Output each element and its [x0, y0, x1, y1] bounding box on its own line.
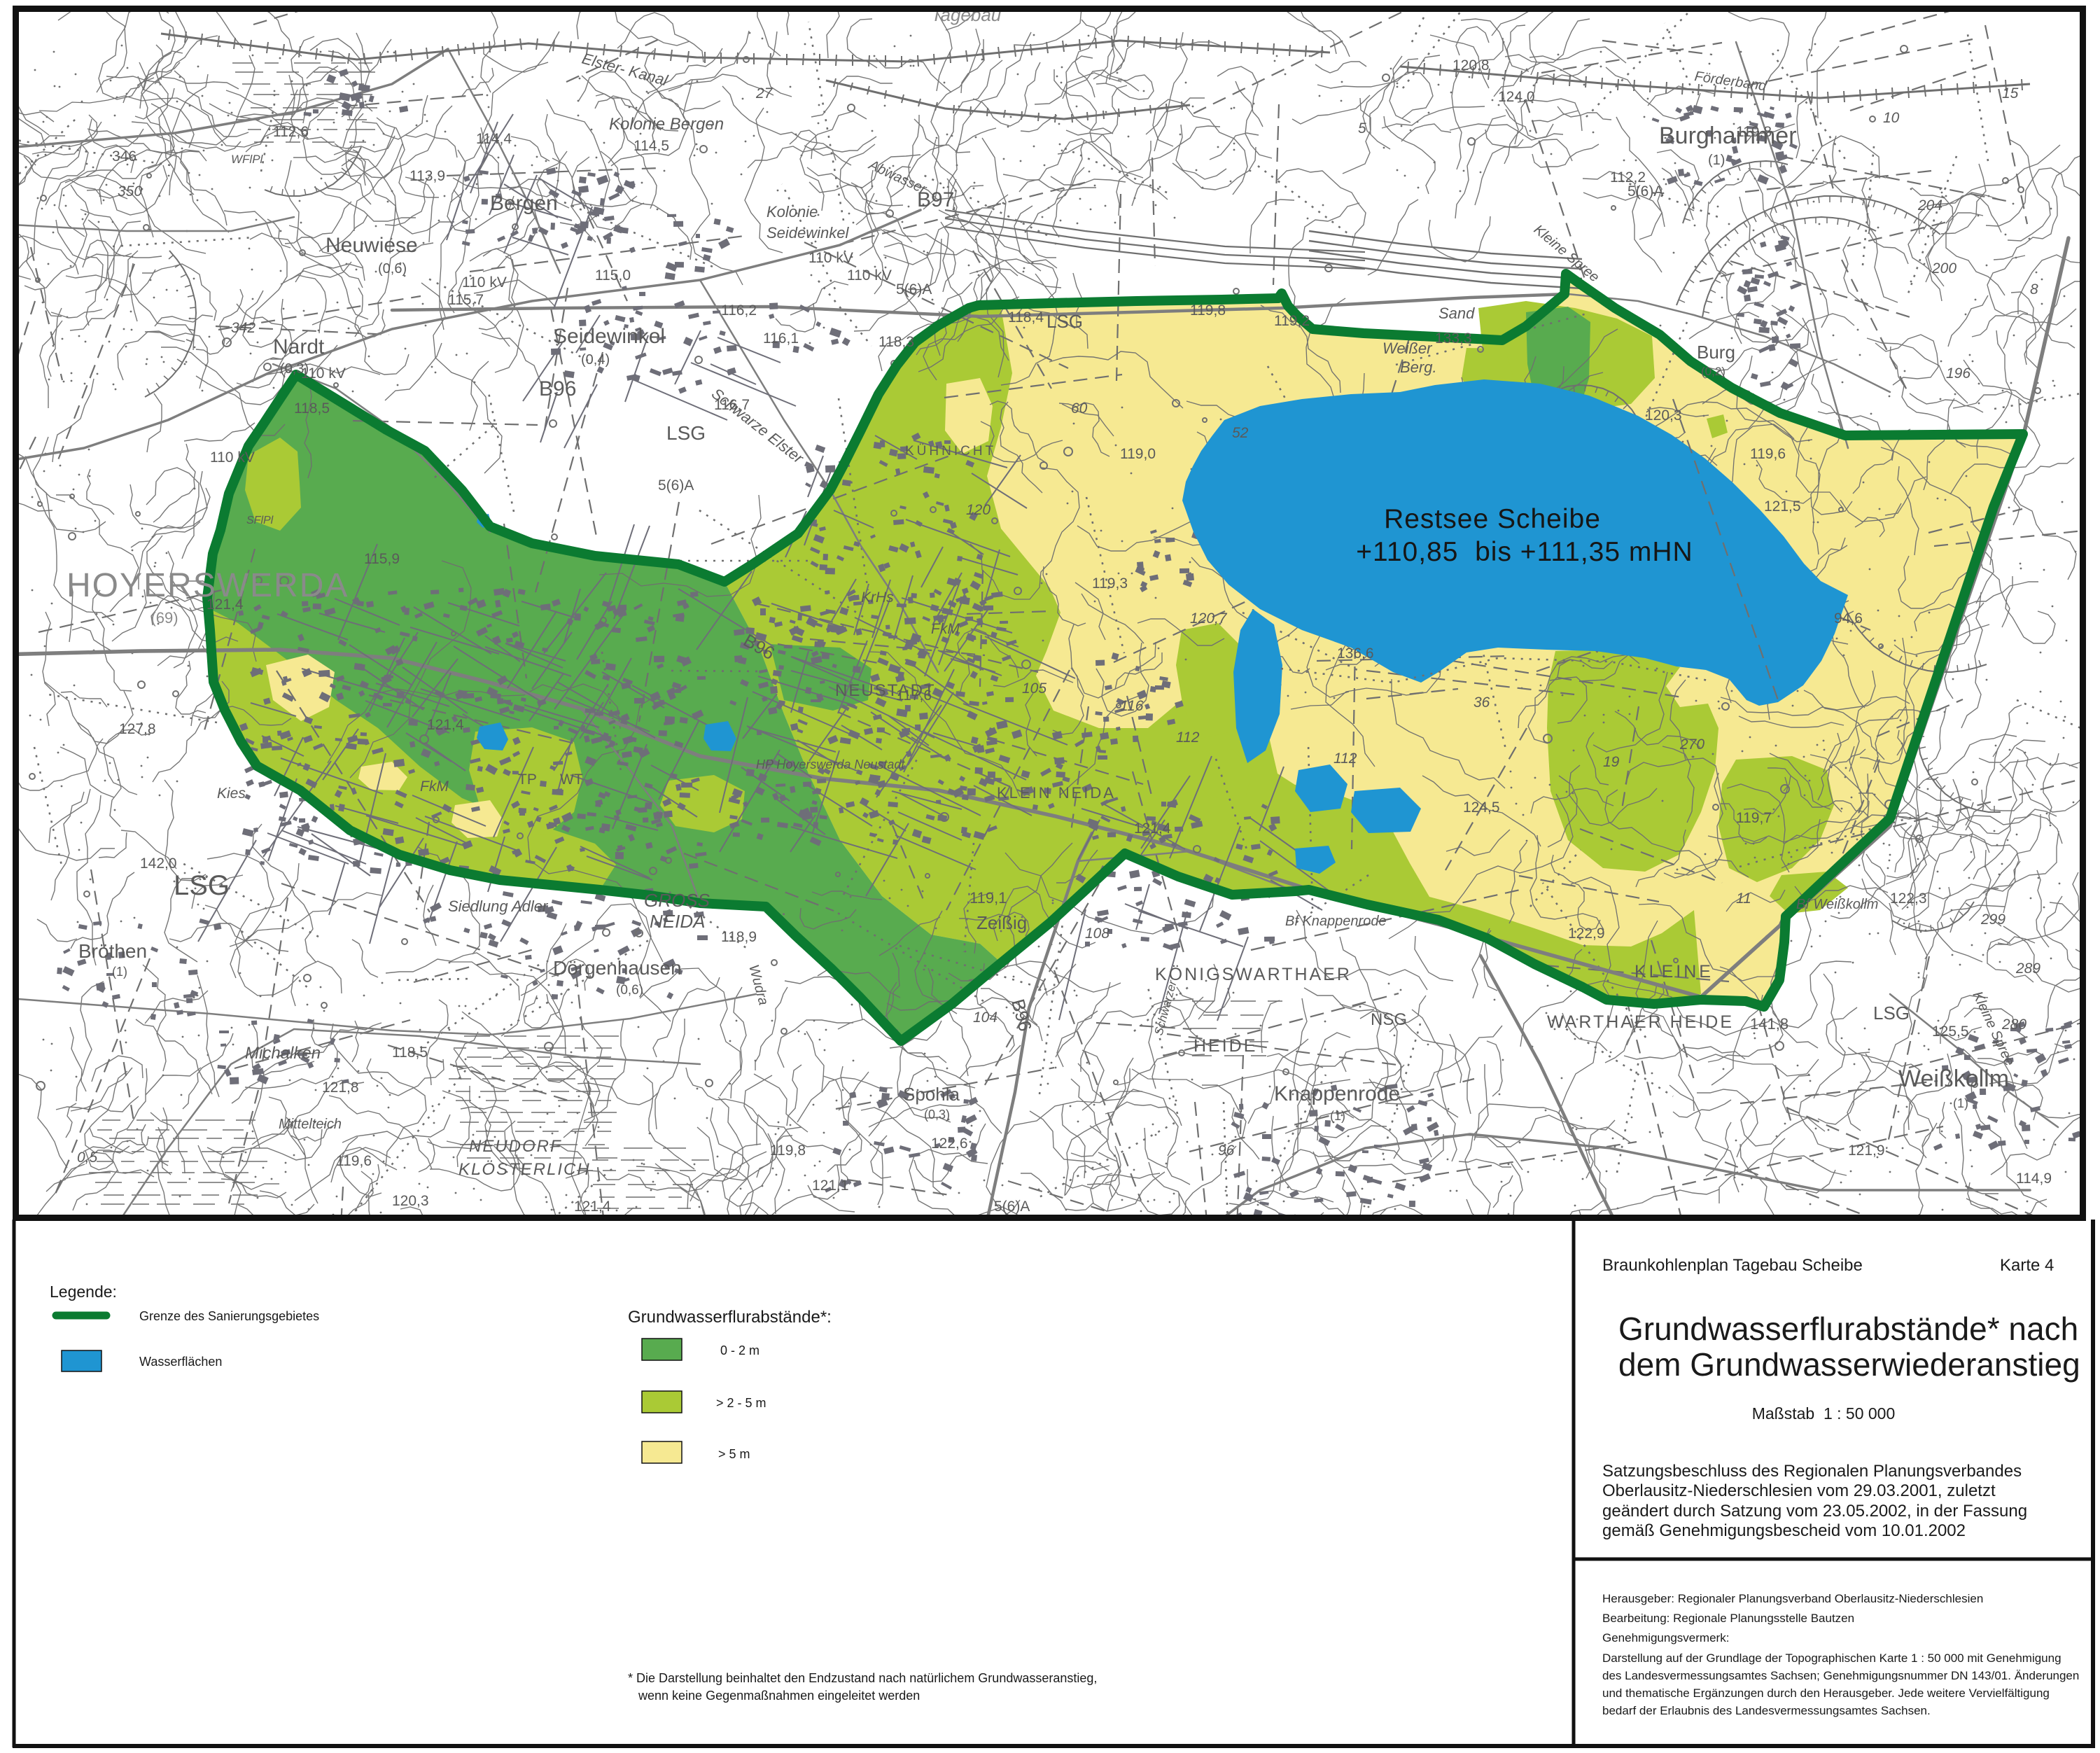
svg-text:5(6)A: 5(6)A [658, 477, 694, 494]
svg-text:119,6: 119,6 [336, 1153, 372, 1169]
svg-text:dem Grundwasserwiederanstieg: dem Grundwasserwiederanstieg [1618, 1346, 2080, 1383]
svg-text:36: 36 [1473, 694, 1490, 711]
svg-text:114,4: 114,4 [476, 131, 512, 147]
svg-text:119,8: 119,8 [1736, 124, 1772, 140]
svg-text:110 kV: 110 kV [210, 449, 255, 466]
svg-text:119,7: 119,7 [1736, 810, 1772, 826]
svg-text:196: 196 [1946, 365, 1970, 382]
svg-text:HEIDE: HEIDE [1193, 1036, 1257, 1056]
svg-text:96: 96 [1218, 1143, 1235, 1159]
svg-text:und thematische Ergänzungen du: und thematische Ergänzungen durch den He… [1602, 1686, 2050, 1700]
svg-text:Karte 4: Karte 4 [2000, 1256, 2054, 1275]
svg-text:0,5: 0,5 [77, 1150, 98, 1166]
svg-text:(0,4): (0,4) [581, 352, 610, 368]
svg-text:Burg: Burg [1697, 342, 1735, 363]
svg-text:(1): (1) [1708, 153, 1725, 168]
svg-text:KÖNIGSWARTHAER: KÖNIGSWARTHAER [1155, 965, 1352, 984]
svg-text:119,6: 119,6 [1750, 446, 1786, 462]
svg-text:113,9: 113,9 [409, 168, 445, 184]
svg-text:(0,2): (0,2) [1701, 365, 1725, 378]
svg-text:Seidewinkel: Seidewinkel [553, 325, 665, 348]
svg-text:136,6: 136,6 [1337, 645, 1374, 662]
svg-text:119,0: 119,0 [1120, 446, 1156, 462]
svg-text:120: 120 [966, 502, 990, 518]
svg-text:Oberlausitz-Niederschlesien vo: Oberlausitz-Niederschlesien vom 29.03.20… [1602, 1481, 1996, 1500]
svg-text:112: 112 [1176, 729, 1200, 746]
svg-text:Zeißig: Zeißig [976, 912, 1027, 933]
svg-text:10: 10 [1883, 110, 1900, 126]
svg-text:HP Hoyerswerda Neustadt: HP Hoyerswerda Neustadt [756, 757, 905, 771]
svg-text:geändert durch Satzung vom 23.: geändert durch Satzung vom 23.05.2002, i… [1602, 1502, 2027, 1521]
svg-text:125,5: 125,5 [1932, 1024, 1969, 1040]
svg-text:gemäß Genehmigungsbescheid vom: gemäß Genehmigungsbescheid vom 10.01.200… [1602, 1521, 1966, 1540]
svg-text:LSG: LSG [666, 422, 706, 444]
svg-text:(1): (1) [1330, 1109, 1345, 1123]
svg-text:121,4: 121,4 [1134, 820, 1171, 837]
svg-text:119,2: 119,2 [1274, 313, 1310, 329]
svg-text:27: 27 [755, 85, 773, 102]
svg-text:KLEIN NEIDA: KLEIN NEIDA [997, 784, 1116, 802]
svg-text:117,6: 117,6 [896, 687, 932, 704]
svg-text:112: 112 [1333, 750, 1357, 767]
svg-text:Genehmigungsvermerk:: Genehmigungsvermerk: [1602, 1631, 1729, 1644]
svg-text:B97: B97 [917, 188, 954, 211]
svg-text:118,4: 118,4 [1008, 309, 1044, 326]
svg-text:122,3: 122,3 [1890, 891, 1927, 907]
svg-text:NEIDA: NEIDA [650, 911, 705, 932]
svg-text:Grundwasserflurabstände*:: Grundwasserflurabstände*: [628, 1308, 832, 1327]
svg-text:Grenze des Sanierungsgebietes: Grenze des Sanierungsgebietes [139, 1309, 319, 1323]
svg-text:wenn keine Gegenmaßnahmen eing: wenn keine Gegenmaßnahmen eingeleitet we… [638, 1689, 920, 1703]
svg-text:110 kV: 110 kV [808, 250, 853, 266]
svg-text:52: 52 [1232, 425, 1249, 441]
svg-text:B96: B96 [539, 377, 576, 400]
svg-text:5(6)A: 5(6)A [994, 1199, 1030, 1215]
svg-text:Legende:: Legende: [50, 1283, 117, 1301]
svg-text:Weißer: Weißer [1382, 340, 1433, 357]
svg-text:342: 342 [231, 320, 255, 336]
svg-text:118,5: 118,5 [294, 400, 330, 417]
svg-text:121,8: 121,8 [322, 1080, 359, 1096]
svg-text:* Die Darstellung beinhaltet d: * Die Darstellung beinhaltet den Endzust… [628, 1671, 1097, 1685]
svg-text:119,1: 119,1 [969, 889, 1007, 907]
svg-text:Siedlung Adler: Siedlung Adler [448, 898, 549, 915]
svg-text:124,5: 124,5 [1463, 799, 1500, 816]
svg-text:Bergen: Bergen [490, 192, 558, 215]
svg-text:Seidewinkel: Seidewinkel [766, 224, 850, 242]
svg-text:Braunkohlenplan Tagebau Scheib: Braunkohlenplan Tagebau Scheibe [1602, 1256, 1863, 1275]
svg-text:Maßstab 1 : 50 000: Maßstab 1 : 50 000 [1752, 1404, 1896, 1423]
svg-text:LSG: LSG [1873, 1003, 1910, 1024]
svg-text:+110,85 bis +111,35 mHN: +110,85 bis +111,35 mHN [1356, 537, 1693, 567]
svg-text:Darstellung auf der Grundlage: Darstellung auf der Grundlage der Topogr… [1602, 1651, 2061, 1665]
svg-text:5(6)A: 5(6)A [896, 281, 932, 298]
svg-text:Nardt: Nardt [273, 335, 325, 358]
svg-text:Bf Knappenrode: Bf Knappenrode [1285, 914, 1387, 929]
svg-text:Wasserflächen: Wasserflächen [139, 1355, 222, 1369]
svg-text:115,0: 115,0 [595, 267, 631, 284]
svg-text:116: 116 [1120, 698, 1144, 714]
svg-text:11: 11 [1736, 891, 1751, 907]
svg-text:Restsee Scheibe: Restsee Scheibe [1384, 504, 1601, 534]
svg-text:5: 5 [1358, 120, 1366, 137]
svg-text:WFlPl: WFlPl [231, 153, 264, 166]
svg-text:Herausgeber: Regionaler Planun: Herausgeber: Regionaler Planungsverband … [1602, 1592, 1983, 1605]
svg-text:Mittelteich: Mittelteich [279, 1117, 342, 1132]
svg-text:des Landesvermessungsamtes Sac: des Landesvermessungsamtes Sachsen; Gene… [1602, 1669, 2079, 1682]
svg-text:204: 204 [1917, 197, 1942, 214]
svg-text:Michalken: Michalken [245, 1044, 321, 1063]
svg-text:(0,6): (0,6) [616, 983, 643, 998]
svg-text:Dörgenhausen: Dörgenhausen [553, 957, 682, 979]
svg-text:Berg.: Berg. [1400, 358, 1437, 376]
svg-text:119,8: 119,8 [1190, 302, 1226, 319]
svg-text:Bf Weißkollm: Bf Weißkollm [1796, 897, 1878, 912]
svg-text:110 kV: 110 kV [301, 365, 346, 382]
svg-text:104: 104 [973, 1010, 997, 1026]
svg-text:Burghammer: Burghammer [1659, 123, 1797, 149]
svg-text:121,4: 121,4 [206, 596, 244, 613]
svg-text:Sand: Sand [1438, 305, 1475, 322]
svg-text:Knappenrode: Knappenrode [1274, 1082, 1400, 1105]
svg-text:SFlPl: SFlPl [246, 515, 274, 526]
svg-text:116,7: 116,7 [714, 397, 750, 413]
svg-text:(69): (69) [150, 609, 178, 627]
svg-text:108: 108 [1085, 926, 1109, 942]
svg-text:112,6: 112,6 [273, 124, 309, 140]
svg-text:115,7: 115,7 [448, 292, 484, 308]
svg-text:19: 19 [1603, 754, 1620, 770]
svg-text:> 5 m: > 5 m [718, 1447, 750, 1461]
svg-text:112,2: 112,2 [1610, 169, 1646, 186]
svg-text:116,1: 116,1 [763, 330, 799, 347]
svg-text:200: 200 [1931, 260, 1956, 277]
svg-text:105: 105 [1022, 680, 1046, 697]
svg-text:0 - 2 m: 0 - 2 m [720, 1343, 759, 1357]
svg-text:Satzungsbeschluss des Regional: Satzungsbeschluss des Regionalen Planung… [1602, 1462, 2022, 1481]
svg-text:Spohla: Spohla [903, 1084, 960, 1105]
svg-text:114,9: 114,9 [2016, 1171, 2052, 1187]
svg-text:299: 299 [1980, 912, 2005, 928]
svg-text:FkM: FkM [931, 621, 960, 637]
svg-text:94,6: 94,6 [1834, 610, 1863, 627]
svg-text:LSG: LSG [174, 870, 230, 901]
svg-text:KrHs: KrHs [861, 589, 894, 606]
svg-text:(0,6): (0,6) [378, 261, 407, 277]
svg-text:GROSS: GROSS [644, 890, 710, 911]
svg-text:120,7: 120,7 [1190, 610, 1228, 627]
svg-text:280: 280 [2001, 1017, 2026, 1033]
svg-text:141,8: 141,8 [1750, 1015, 1788, 1033]
svg-text:5(6)A: 5(6)A [1627, 183, 1663, 200]
svg-text:LSG: LSG [1046, 311, 1083, 332]
svg-text:Bröthen: Bröthen [78, 940, 147, 962]
svg-text:FkM: FkM [420, 778, 449, 795]
svg-text:Weißkollm: Weißkollm [1898, 1066, 2009, 1092]
svg-text:346: 346 [112, 148, 136, 165]
svg-text:110 kV: 110 kV [462, 274, 507, 291]
svg-text:KÜHNICHT: KÜHNICHT [905, 444, 996, 459]
svg-text:Kolonie Bergen: Kolonie Bergen [609, 115, 724, 134]
svg-text:350: 350 [118, 183, 142, 200]
svg-text:KLEINE: KLEINE [1634, 962, 1714, 982]
svg-text:121,5: 121,5 [1764, 498, 1801, 515]
svg-text:15: 15 [2002, 85, 2019, 102]
svg-text:142,0: 142,0 [140, 855, 177, 872]
svg-text:8: 8 [2030, 281, 2038, 298]
svg-text:119,8: 119,8 [770, 1143, 806, 1159]
svg-text:> 2 - 5 m: > 2 - 5 m [716, 1396, 766, 1410]
svg-text:116,2: 116,2 [721, 302, 757, 319]
svg-text:127,8: 127,8 [119, 721, 156, 737]
svg-text:121,9: 121,9 [1848, 1143, 1885, 1159]
svg-text:121,4: 121,4 [427, 717, 464, 733]
svg-text:120,3: 120,3 [1645, 407, 1682, 424]
svg-text:270: 270 [1679, 736, 1704, 753]
svg-text:TP: TP [518, 771, 537, 788]
svg-text:124,0: 124,0 [1498, 89, 1535, 105]
svg-text:NSG: NSG [1371, 1010, 1407, 1029]
svg-text:120,3: 120,3 [392, 1193, 429, 1209]
svg-text:bedarf der Erlaubnis des Lande: bedarf der Erlaubnis des Landesvermessun… [1602, 1704, 1931, 1717]
svg-text:122,6: 122,6 [931, 1136, 968, 1152]
svg-text:119,3: 119,3 [1092, 575, 1128, 592]
svg-text:118,5: 118,5 [392, 1045, 428, 1061]
svg-text:120,8: 120,8 [1452, 57, 1490, 74]
svg-text:133,3: 133,3 [1435, 330, 1472, 347]
svg-text:Kies: Kies [217, 785, 246, 802]
svg-text:289: 289 [2015, 961, 2040, 977]
svg-text:Grundwasserflurabstände* nach: Grundwasserflurabstände* nach [1618, 1311, 2078, 1347]
svg-text:(1): (1) [1953, 1096, 1968, 1110]
svg-text:122,9: 122,9 [1568, 926, 1605, 942]
svg-text:WT: WT [560, 771, 583, 788]
svg-text:121,1: 121,1 [812, 1178, 849, 1194]
svg-text:Bearbeitung: Regionale Planung: Bearbeitung: Regionale Planungsstelle Ba… [1602, 1612, 1854, 1625]
svg-text:118,3: 118,3 [878, 334, 914, 350]
svg-text:115,9: 115,9 [364, 551, 400, 567]
svg-text:(0,3): (0,3) [924, 1108, 950, 1122]
svg-text:KLÖSTERLICH: KLÖSTERLICH [458, 1160, 591, 1179]
svg-text:NEUDORF: NEUDORF [469, 1137, 562, 1156]
svg-text:110 kV: 110 kV [847, 267, 892, 284]
svg-text:Neuwiese: Neuwiese [325, 234, 418, 257]
svg-text:114,5: 114,5 [633, 138, 669, 154]
svg-text:WARTHAER HEIDE: WARTHAER HEIDE [1547, 1012, 1734, 1032]
svg-text:121,4: 121,4 [574, 1199, 611, 1215]
svg-text:60: 60 [1071, 400, 1088, 417]
svg-text:(1): (1) [112, 965, 127, 979]
svg-text:118,9: 118,9 [721, 929, 757, 945]
svg-text:Kolonie: Kolonie [766, 203, 818, 221]
